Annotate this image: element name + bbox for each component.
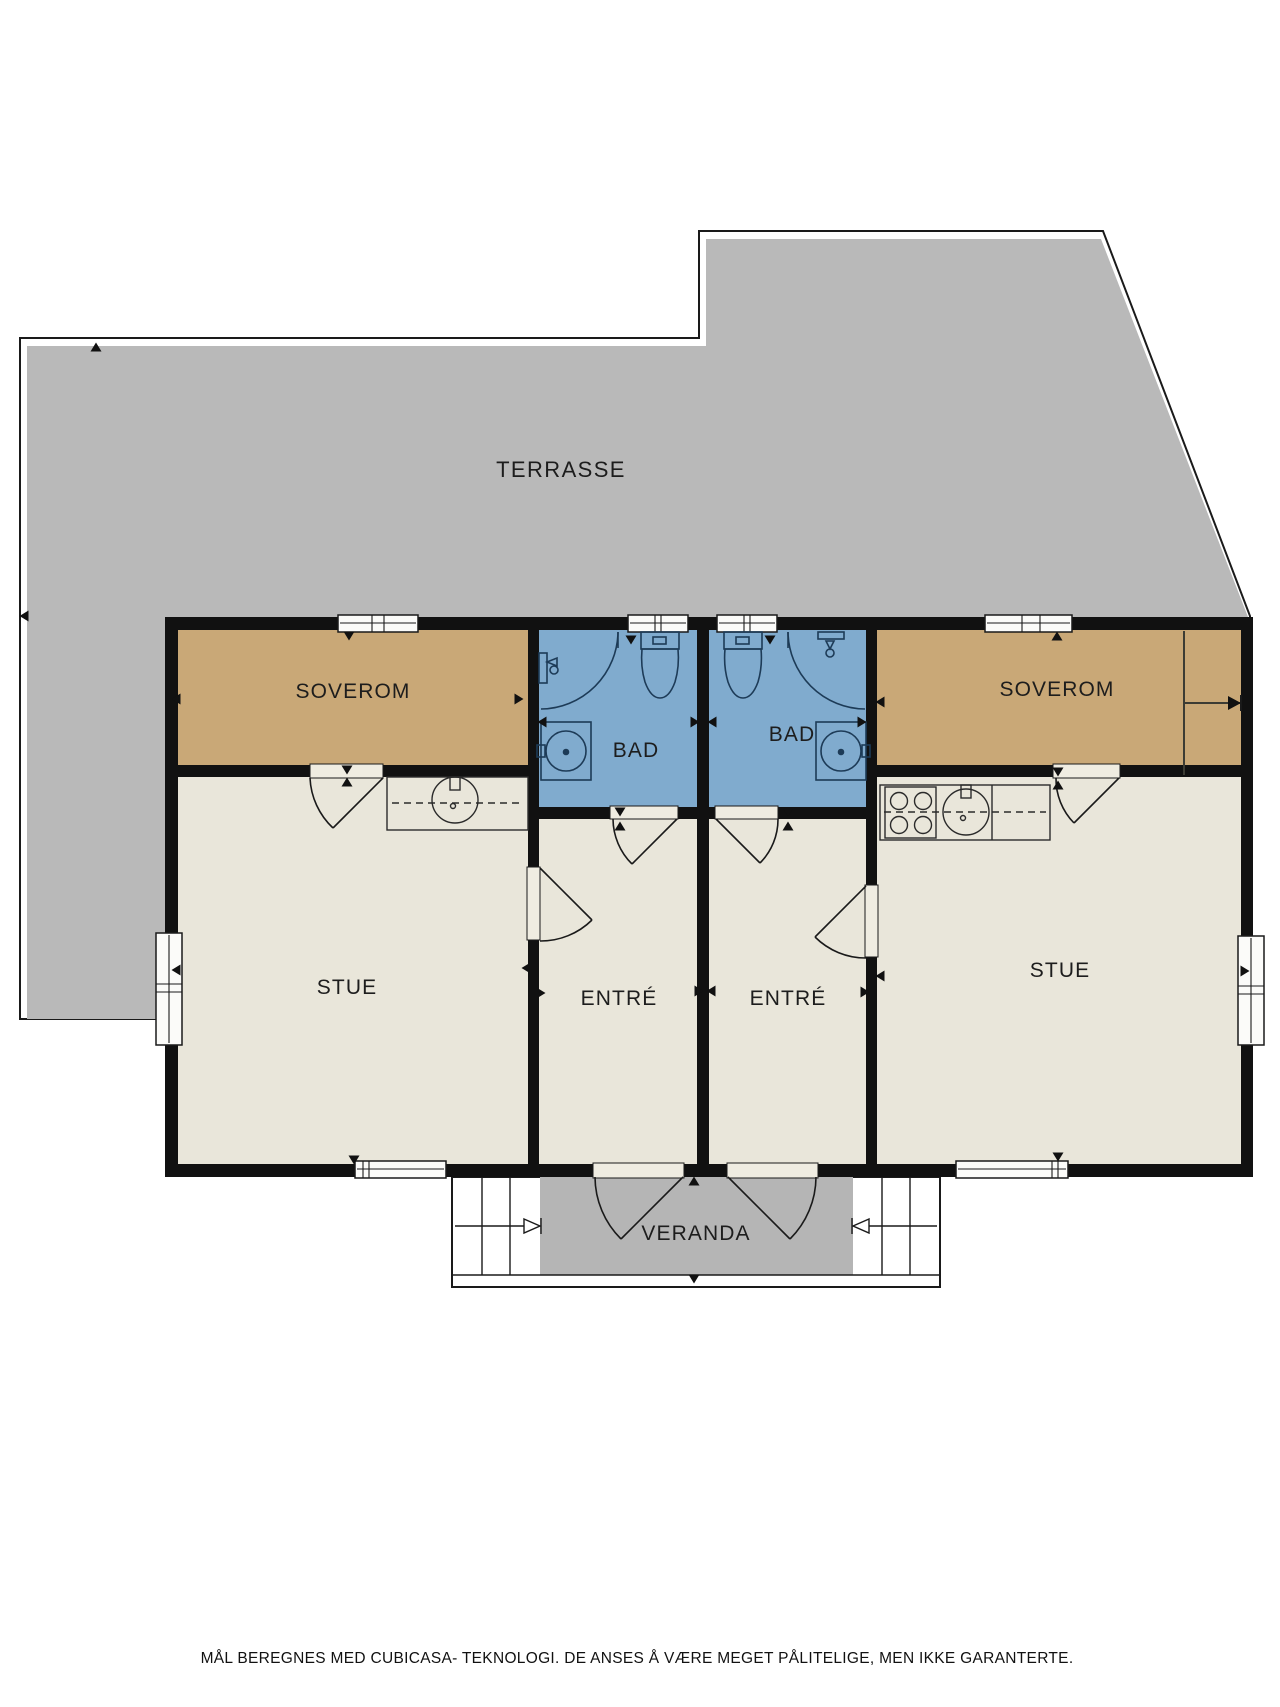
window-bad-left-top: [628, 615, 688, 632]
door-entre-left: [527, 867, 540, 940]
bad-left-label: BAD: [613, 739, 659, 762]
window-bad-right-top: [717, 615, 777, 632]
terrace-label: TERRASSE: [496, 457, 626, 482]
window-stue-right-side: [1238, 936, 1264, 1045]
disclaimer-text: MÅL BEREGNES MED CUBICASA- TEKNOLOGI. DE…: [201, 1650, 1074, 1667]
floorplan-page: TERRASSE VERANDA: [0, 0, 1280, 1707]
window-stue-left-bottom: [355, 1161, 446, 1178]
door-veranda-right: [727, 1163, 818, 1178]
bad-right-label: BAD: [769, 723, 815, 746]
floorplan-canvas: TERRASSE VERANDA: [0, 0, 1280, 1707]
stue-left-label: STUE: [317, 976, 377, 999]
door-entre-right: [865, 885, 878, 957]
door-bad-right: [715, 806, 778, 819]
window-soverom-right-top: [985, 615, 1072, 632]
veranda-label: VERANDA: [641, 1222, 750, 1245]
soverom-left-label: SOVEROM: [295, 680, 410, 703]
stue-right-label: STUE: [1030, 959, 1090, 982]
window-stue-right-bottom: [956, 1161, 1068, 1178]
entre-right-label: ENTRÉ: [750, 987, 827, 1010]
room-stue-left: [178, 777, 528, 1164]
veranda-area: VERANDA: [452, 1177, 940, 1287]
room-floors: [178, 630, 1241, 1164]
door-veranda-left: [593, 1163, 684, 1178]
window-soverom-left-top: [338, 615, 418, 632]
entre-left-label: ENTRÉ: [581, 987, 658, 1010]
window-stue-left-side: [156, 933, 182, 1045]
soverom-right-label: SOVEROM: [999, 678, 1114, 701]
door-soverom-right: [1053, 764, 1120, 778]
